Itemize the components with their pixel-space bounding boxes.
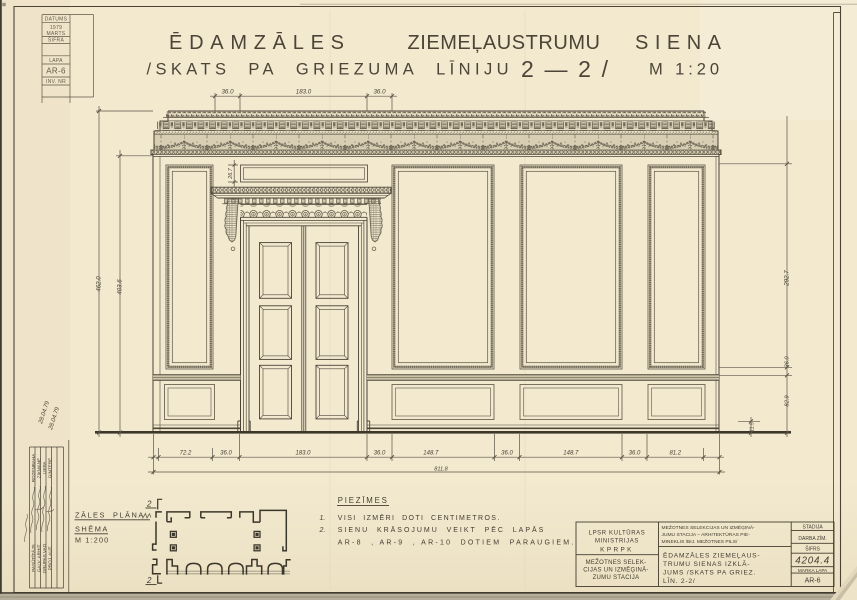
svg-text:36.0: 36.0 — [220, 451, 232, 457]
svg-text:SHĒMA: SHĒMA — [75, 525, 109, 534]
svg-text:ŠIFRS: ŠIFRS — [805, 546, 820, 553]
svg-text:ZĀLES PLĀNA: ZĀLES PLĀNA — [75, 511, 145, 520]
svg-text:PROJ. AUT.: PROJ. AUT. — [48, 546, 53, 571]
svg-text:SIENA: SIENA — [635, 32, 722, 54]
svg-text:LAPA: LAPA — [49, 58, 63, 64]
svg-text:36.0: 36.0 — [373, 89, 386, 96]
svg-text:LPSR KULTŪRAS: LPSR KULTŪRAS — [589, 530, 646, 537]
svg-text:11.5: 11.5 — [750, 422, 756, 432]
svg-text:LIEPA: LIEPA — [42, 461, 47, 475]
svg-text:36.0: 36.0 — [501, 451, 513, 457]
svg-text:MARTS: MARTS — [47, 31, 66, 37]
svg-text:PASŪTĪTĀJS: PASŪTĪTĀJS — [30, 544, 36, 571]
svg-text:148.7: 148.7 — [563, 451, 579, 457]
svg-text:KPRPK: KPRPK — [600, 547, 634, 554]
svg-text:JUMU STACIJA – ARHITEKTŪRAS PI: JUMU STACIJA – ARHITEKTŪRAS PIE- — [662, 531, 751, 538]
svg-text:TRUMU SIENAS IZKLĀ-: TRUMU SIENAS IZKLĀ- — [663, 560, 750, 568]
svg-text:2: 2 — [146, 500, 152, 509]
svg-text:72.2: 72.2 — [180, 451, 192, 457]
svg-text:DATUMS: DATUMS — [45, 16, 68, 22]
svg-text:4204.4: 4204.4 — [795, 556, 830, 567]
svg-text:2: 2 — [146, 576, 152, 585]
svg-text:36.0: 36.0 — [374, 451, 386, 457]
svg-text:ĒDAMZĀLES ZIEMEĻAUS-: ĒDAMZĀLES ZIEMEĻAUS- — [663, 552, 760, 560]
svg-text:MEŽOTNES SELEK-: MEŽOTNES SELEK- — [586, 558, 647, 566]
svg-text:MARKA LAPA: MARKA LAPA — [798, 568, 828, 573]
svg-text:462.0: 462.0 — [96, 276, 103, 292]
svg-text:ZUMU STACIJA: ZUMU STACIJA — [593, 575, 640, 581]
svg-text:292.7: 292.7 — [784, 270, 791, 287]
svg-text:36.0: 36.0 — [629, 451, 641, 457]
svg-text:PIEZĪMES: PIEZĪMES — [338, 496, 389, 505]
svg-text:DARBA ZĪM.: DARBA ZĪM. — [798, 535, 826, 542]
svg-text:M 1:200: M 1:200 — [75, 536, 109, 545]
svg-text:INV. NR: INV. NR — [46, 79, 66, 85]
svg-text:STADIJA: STADIJA — [802, 525, 823, 531]
svg-text:82.9: 82.9 — [785, 395, 791, 407]
svg-text:CIJAS UN IZMĒĢINĀ-: CIJAS UN IZMĒĢINĀ- — [583, 567, 648, 574]
svg-text:36.0: 36.0 — [221, 89, 234, 96]
svg-text:26.7: 26.7 — [228, 167, 234, 179]
svg-text:ZIEMEĻAUSTRUMU: ZIEMEĻAUSTRUMU — [408, 32, 601, 54]
svg-text:ĒDAMZĀLES: ĒDAMZĀLES — [169, 31, 344, 54]
svg-text:JUMS /SKATS PA GRIEZ.: JUMS /SKATS PA GRIEZ. — [663, 570, 756, 577]
svg-text:36.0: 36.0 — [785, 356, 791, 368]
svg-text:AR-6: AR-6 — [46, 67, 66, 76]
svg-text:MINISTRIJAS: MINISTRIJAS — [595, 539, 639, 545]
svg-text:SIENU KRĀSOJUMU VEIKT PĒC: SIENU KRĀSOJUMU VEIKT PĒC LAPĀS — [338, 526, 544, 534]
svg-text:ROZENBAHA: ROZENBAHA — [31, 453, 36, 483]
svg-text:183.0: 183.0 — [296, 89, 312, 96]
svg-text:ŠIFRA: ŠIFRA — [48, 37, 65, 44]
svg-text:GRUPAS VAD.: GRUPAS VAD. — [42, 543, 47, 574]
svg-text:1.: 1. — [320, 515, 326, 522]
svg-text:811.8: 811.8 — [434, 467, 448, 473]
svg-text:2.: 2. — [319, 527, 326, 534]
svg-text:403.6: 403.6 — [117, 279, 124, 295]
svg-text:148.7: 148.7 — [423, 451, 439, 457]
svg-text:GINTERE: GINTERE — [48, 458, 53, 478]
svg-text:GALV. ARHIT.: GALV. ARHIT. — [37, 544, 42, 572]
svg-text:ZIKMANE: ZIKMANE — [37, 458, 42, 478]
svg-text:1979: 1979 — [50, 25, 62, 31]
svg-text:81.2: 81.2 — [669, 451, 681, 457]
svg-text:183.0: 183.0 — [295, 451, 311, 457]
svg-text:LĪN. 2-2/: LĪN. 2-2/ — [663, 577, 696, 585]
svg-text:AR-6: AR-6 — [805, 578, 821, 585]
